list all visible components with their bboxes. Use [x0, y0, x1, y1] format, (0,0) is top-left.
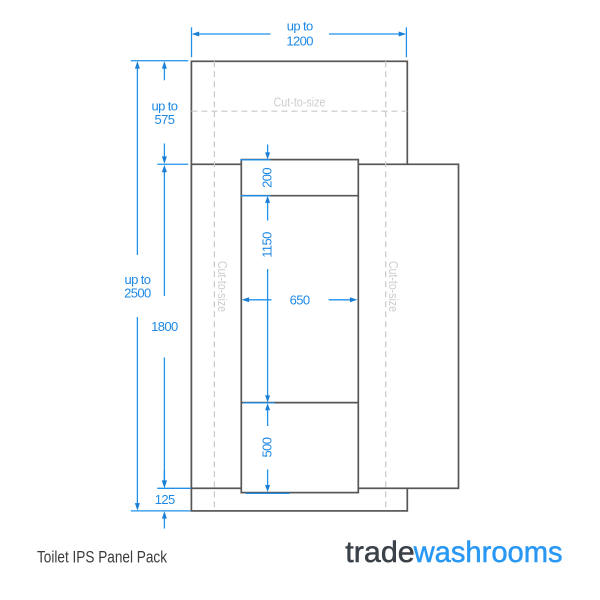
svg-text:trade: trade: [345, 536, 414, 569]
svg-text:Cut-to-size: Cut-to-size: [386, 261, 400, 312]
svg-text:Toilet IPS Panel Pack: Toilet IPS Panel Pack: [37, 548, 168, 566]
svg-text:Cut-to-size: Cut-to-size: [274, 96, 326, 110]
svg-text:up to: up to: [287, 19, 313, 34]
svg-text:650: 650: [290, 292, 310, 307]
svg-text:1150: 1150: [260, 232, 275, 258]
svg-text:1800: 1800: [151, 319, 178, 334]
svg-text:washrooms: washrooms: [413, 536, 563, 569]
svg-text:125: 125: [155, 492, 175, 507]
svg-text:1200: 1200: [286, 34, 313, 49]
svg-text:575: 575: [154, 112, 174, 127]
svg-text:200: 200: [260, 168, 275, 188]
svg-text:500: 500: [260, 437, 275, 457]
svg-text:Cut-to-size: Cut-to-size: [215, 261, 229, 312]
svg-text:2500: 2500: [124, 285, 151, 300]
